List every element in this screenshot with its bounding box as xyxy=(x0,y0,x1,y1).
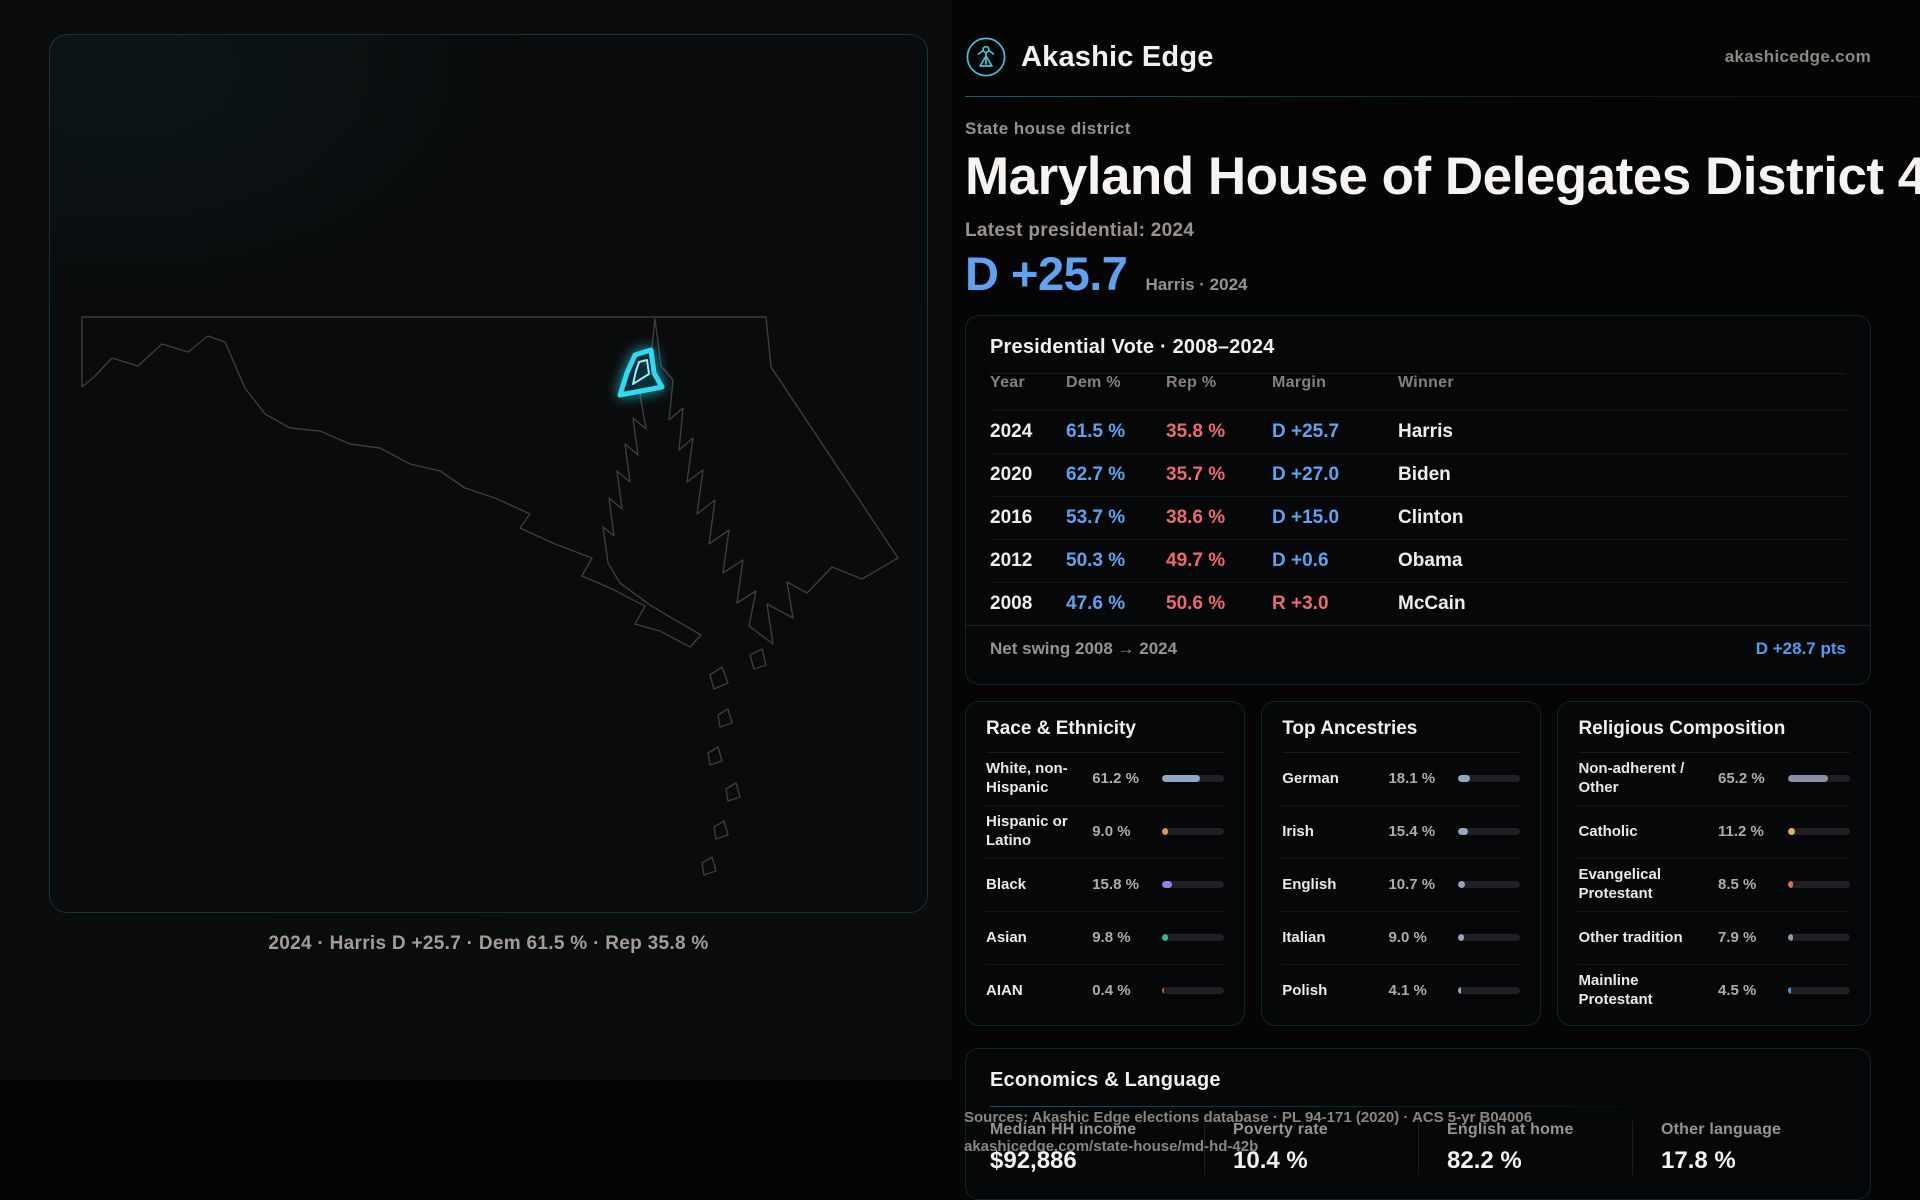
latest-presidential-label: Latest presidential: 2024 xyxy=(965,220,1871,242)
header-divider xyxy=(965,96,1920,97)
demo-value: 61.2 % xyxy=(1092,770,1152,787)
table-cell-rep: 35.7 % xyxy=(1166,453,1272,496)
demo-bar xyxy=(1162,828,1224,835)
district-map xyxy=(49,34,928,913)
demo-row-item: Italian 9.0 % xyxy=(1282,912,1520,965)
race-ethnicity-card: Race & Ethnicity White, non-Hispanic 61.… xyxy=(965,701,1245,1026)
demo-value: 15.8 % xyxy=(1092,876,1152,893)
table-cell-margin: D +0.6 xyxy=(1272,539,1398,582)
card-title: Top Ancestries xyxy=(1282,718,1520,740)
page-title: Maryland House of Delegates District 42B xyxy=(965,147,1920,208)
demo-row-item: Black 15.8 % xyxy=(986,859,1224,912)
table-cell-margin: D +15.0 xyxy=(1272,496,1398,539)
akashic-edge-logo-icon xyxy=(965,36,1007,78)
demo-value: 0.4 % xyxy=(1092,982,1152,999)
demo-value: 9.0 % xyxy=(1388,929,1448,946)
demo-bar xyxy=(1162,987,1224,994)
demo-bar xyxy=(1788,828,1850,835)
col-header-rep: Rep % xyxy=(1166,374,1272,410)
table-cell-winner: Clinton xyxy=(1398,496,1846,539)
table-cell-year: 2016 xyxy=(990,496,1066,539)
headline-margin-row: D +25.7 Harris · 2024 xyxy=(965,246,1871,301)
demo-bar xyxy=(1788,987,1850,994)
card-title: Religious Composition xyxy=(1578,718,1850,740)
demo-value: 9.0 % xyxy=(1092,823,1152,840)
stat-value: $92,886 xyxy=(990,1147,1204,1175)
map-section: 2024 · Harris D +25.7 · Dem 61.5 % · Rep… xyxy=(0,0,952,1080)
presidential-card-title: Presidential Vote · 2008–2024 xyxy=(990,336,1846,359)
table-cell-rep: 38.6 % xyxy=(1166,496,1272,539)
table-cell-dem: 50.3 % xyxy=(1066,539,1166,582)
demo-label: Other tradition xyxy=(1578,929,1708,948)
kicker: State house district xyxy=(965,119,1871,139)
demo-value: 7.9 % xyxy=(1718,929,1778,946)
economics-card-title: Economics & Language xyxy=(990,1069,1846,1092)
demo-value: 65.2 % xyxy=(1718,770,1778,787)
economics-language-card: Economics & Language Median HH income $9… xyxy=(965,1048,1871,1200)
table-cell-year: 2012 xyxy=(990,539,1066,582)
demo-label: Italian xyxy=(1282,929,1378,948)
top-ancestries-card: Top Ancestries German 18.1 % Irish 15.4 … xyxy=(1261,701,1541,1026)
demo-label: Non-adherent / Other xyxy=(1578,760,1708,798)
table-cell-year: 2020 xyxy=(990,453,1066,496)
demo-row-item: AIAN 0.4 % xyxy=(986,965,1224,1017)
stat-value: 82.2 % xyxy=(1447,1147,1632,1175)
demo-row-item: Hispanic or Latino 9.0 % xyxy=(986,806,1224,859)
demo-label: Catholic xyxy=(1578,823,1708,842)
col-header-winner: Winner xyxy=(1398,374,1846,410)
table-cell-dem: 47.6 % xyxy=(1066,582,1166,625)
table-cell-winner: McCain xyxy=(1398,582,1846,625)
demo-label: Polish xyxy=(1282,982,1378,1001)
demo-bar xyxy=(1458,828,1520,835)
demographics-row: Race & Ethnicity White, non-Hispanic 61.… xyxy=(965,701,1871,1026)
demo-label: Black xyxy=(986,876,1082,895)
report-panel: Akashic Edge akashicedge.com State house… xyxy=(952,0,1920,1080)
maryland-map-svg xyxy=(50,35,929,914)
demo-bar xyxy=(1458,934,1520,941)
stat-label: Other language xyxy=(1661,1121,1846,1139)
demo-bar xyxy=(1162,934,1224,941)
demo-row-item: White, non-Hispanic 61.2 % xyxy=(986,753,1224,806)
header: Akashic Edge akashicedge.com xyxy=(965,36,1871,78)
stat-value: 17.8 % xyxy=(1661,1147,1846,1175)
table-cell-rep: 49.7 % xyxy=(1166,539,1272,582)
table-cell-margin: D +27.0 xyxy=(1272,453,1398,496)
table-cell-winner: Biden xyxy=(1398,453,1846,496)
table-cell-winner: Obama xyxy=(1398,539,1846,582)
demo-label: German xyxy=(1282,770,1378,789)
demo-row-item: Asian 9.8 % xyxy=(986,912,1224,965)
demo-bar xyxy=(1458,881,1520,888)
card-title: Race & Ethnicity xyxy=(986,718,1224,740)
demo-row-item: German 18.1 % xyxy=(1282,753,1520,806)
demo-bar xyxy=(1162,775,1224,782)
religious-composition-card: Religious Composition Non-adherent / Oth… xyxy=(1557,701,1871,1026)
col-header-dem: Dem % xyxy=(1066,374,1166,410)
presidential-vote-table: Year Dem % Rep % Margin Winner 2024 61.5… xyxy=(990,374,1846,625)
demo-label: Asian xyxy=(986,929,1082,948)
demo-label: English xyxy=(1282,876,1378,895)
demo-label: AIAN xyxy=(986,982,1082,1001)
stat-value: 10.4 % xyxy=(1233,1147,1418,1175)
source-line: Sources: Akashic Edge elections database… xyxy=(964,1103,1532,1132)
demo-row-item: Other tradition 7.9 % xyxy=(1578,912,1850,965)
table-cell-margin: D +25.7 xyxy=(1272,410,1398,453)
headline-margin: D +25.7 xyxy=(965,246,1127,301)
net-swing-label: Net swing 2008 → 2024 xyxy=(990,639,1177,659)
net-swing-value: D +28.7 pts xyxy=(1756,639,1846,659)
demo-value: 4.1 % xyxy=(1388,982,1448,999)
demo-row-item: English 10.7 % xyxy=(1282,859,1520,912)
table-cell-dem: 61.5 % xyxy=(1066,410,1166,453)
table-cell-rep: 35.8 % xyxy=(1166,410,1272,453)
demo-row-item: Irish 15.4 % xyxy=(1282,806,1520,859)
demo-row-item: Polish 4.1 % xyxy=(1282,965,1520,1017)
district-marker[interactable] xyxy=(620,350,662,395)
table-cell-year: 2008 xyxy=(990,582,1066,625)
demo-bar xyxy=(1162,881,1224,888)
table-cell-margin: R +3.0 xyxy=(1272,582,1398,625)
demo-label: Hispanic or Latino xyxy=(986,813,1082,851)
table-cell-dem: 62.7 % xyxy=(1066,453,1166,496)
table-cell-year: 2024 xyxy=(990,410,1066,453)
demo-value: 18.1 % xyxy=(1388,770,1448,787)
demo-value: 11.2 % xyxy=(1718,823,1778,840)
table-cell-dem: 53.7 % xyxy=(1066,496,1166,539)
demo-bar xyxy=(1788,934,1850,941)
headline-note: Harris · 2024 xyxy=(1145,275,1247,295)
demo-value: 10.7 % xyxy=(1388,876,1448,893)
brand-domain-link[interactable]: akashicedge.com xyxy=(1725,47,1871,67)
table-cell-rep: 50.6 % xyxy=(1166,582,1272,625)
demo-label: White, non-Hispanic xyxy=(986,760,1082,798)
net-swing-row: Net swing 2008 → 2024 D +28.7 pts xyxy=(966,625,1870,672)
table-cell-winner: Harris xyxy=(1398,410,1846,453)
maryland-outline xyxy=(82,317,898,875)
demo-value: 15.4 % xyxy=(1388,823,1448,840)
demo-bar xyxy=(1458,987,1520,994)
demo-bar xyxy=(1788,881,1850,888)
demo-value: 4.5 % xyxy=(1718,982,1778,999)
demo-row-item: Catholic 11.2 % xyxy=(1578,806,1850,859)
presidential-vote-card: Presidential Vote · 2008–2024 Year Dem %… xyxy=(965,315,1871,685)
demo-value: 8.5 % xyxy=(1718,876,1778,893)
demo-row-item: Non-adherent / Other 65.2 % xyxy=(1578,753,1850,806)
demo-value: 9.8 % xyxy=(1092,929,1152,946)
stat-other-language: Other language 17.8 % xyxy=(1632,1121,1846,1175)
demo-label: Irish xyxy=(1282,823,1378,842)
demo-label: Mainline Protestant xyxy=(1578,972,1708,1010)
map-caption: 2024 · Harris D +25.7 · Dem 61.5 % · Rep… xyxy=(49,933,928,955)
demo-bar xyxy=(1458,775,1520,782)
col-header-margin: Margin xyxy=(1272,374,1398,410)
demo-row-item: Evangelical Protestant 8.5 % xyxy=(1578,859,1850,912)
demo-row-item: Mainline Protestant 4.5 % xyxy=(1578,965,1850,1017)
demo-bar xyxy=(1788,775,1850,782)
col-header-year: Year xyxy=(990,374,1066,410)
demo-label: Evangelical Protestant xyxy=(1578,866,1708,904)
brand-name: Akashic Edge xyxy=(1021,41,1214,74)
